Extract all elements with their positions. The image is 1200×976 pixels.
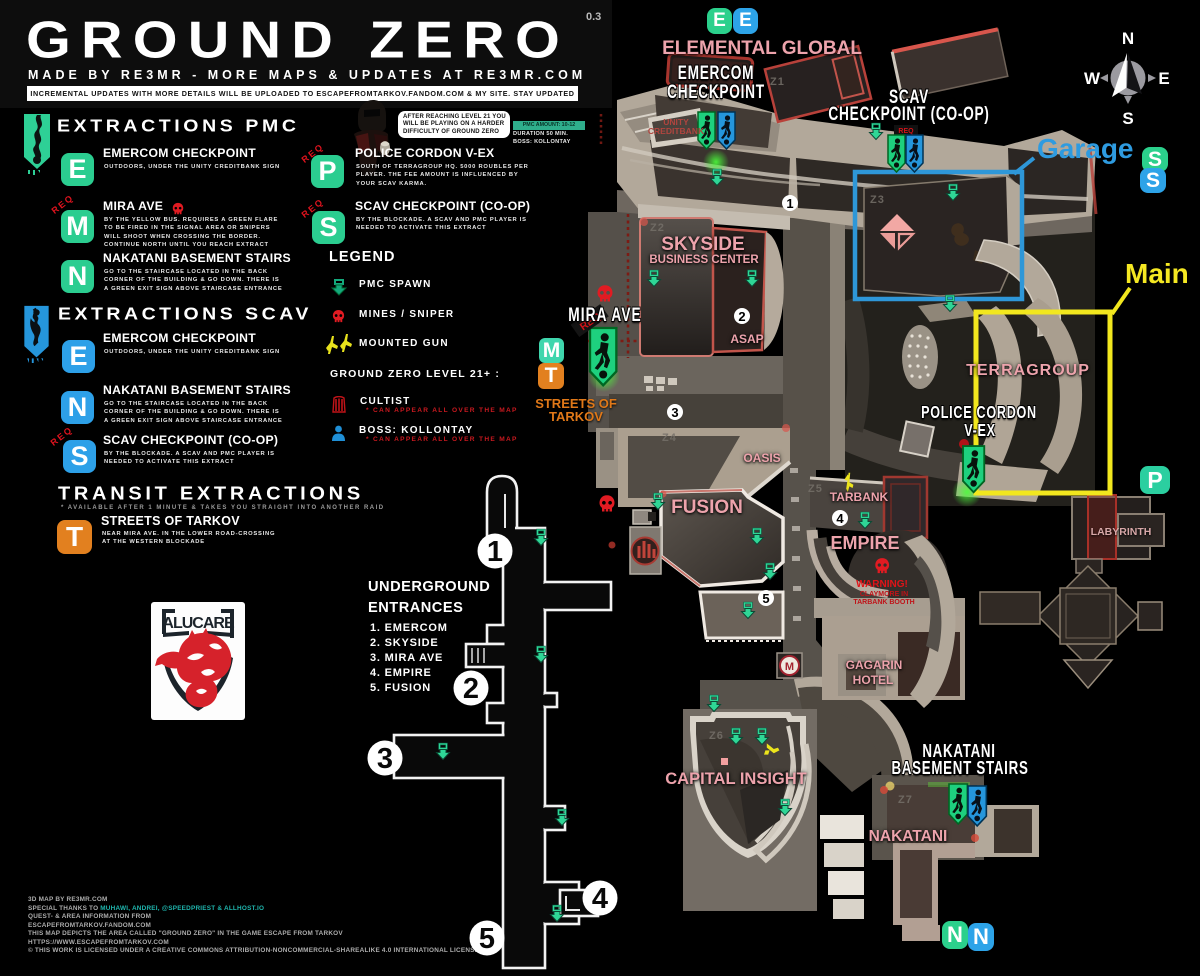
- svg-text:4: 4: [836, 511, 844, 526]
- svg-text:M: M: [785, 661, 794, 673]
- svg-text:2: 2: [738, 309, 745, 324]
- svg-text:1: 1: [786, 196, 793, 211]
- svg-text:5: 5: [762, 591, 769, 606]
- svg-text:E: E: [1158, 69, 1169, 88]
- svg-text:N: N: [1122, 29, 1134, 48]
- svg-text:S: S: [1122, 109, 1133, 128]
- svg-text:REQ: REQ: [898, 128, 914, 135]
- svg-text:W: W: [1084, 69, 1101, 88]
- svg-text:3: 3: [671, 405, 678, 420]
